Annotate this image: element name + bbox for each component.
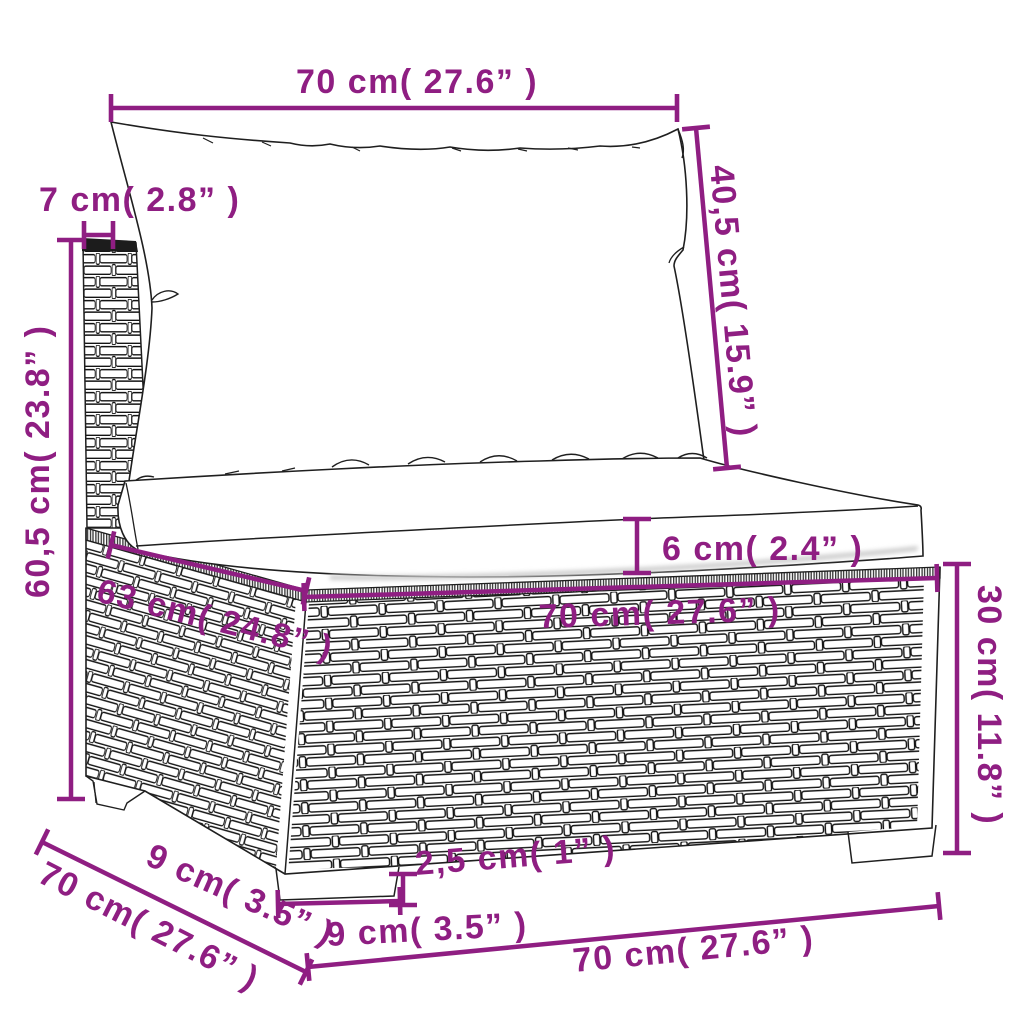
svg-text:30 cm( 11.8” ): 30 cm( 11.8” ) bbox=[970, 585, 1008, 825]
svg-text:7 cm( 2.8” ): 7 cm( 2.8” ) bbox=[39, 181, 240, 219]
svg-text:6 cm( 2.4” ): 6 cm( 2.4” ) bbox=[662, 530, 863, 568]
svg-text:70 cm( 27.6” ): 70 cm( 27.6” ) bbox=[538, 590, 781, 636]
svg-text:70 cm( 27.6” ): 70 cm( 27.6” ) bbox=[296, 63, 538, 101]
svg-text:60,5 cm( 23.8” ): 60,5 cm( 23.8” ) bbox=[19, 325, 57, 598]
